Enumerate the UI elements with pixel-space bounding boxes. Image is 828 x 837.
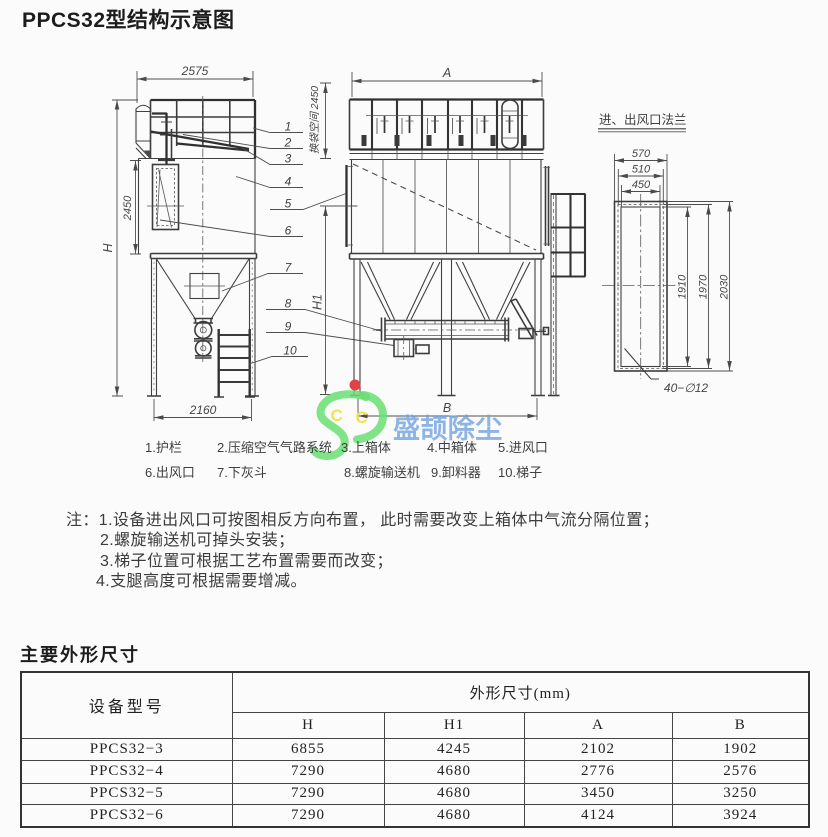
svg-text:换袋空间 2450: 换袋空间 2450 — [309, 86, 321, 154]
svg-text:570: 570 — [632, 148, 651, 160]
svg-text:5: 5 — [285, 197, 292, 211]
svg-text:7: 7 — [285, 261, 293, 275]
svg-text:8: 8 — [285, 297, 292, 311]
svg-text:H: H — [101, 243, 115, 253]
svg-text:510: 510 — [632, 164, 651, 176]
svg-text:2575: 2575 — [181, 64, 209, 78]
svg-text:B: B — [443, 401, 451, 415]
svg-text:450: 450 — [632, 179, 651, 191]
svg-text:H1: H1 — [311, 294, 325, 310]
svg-text:1970: 1970 — [698, 274, 710, 299]
svg-text:2: 2 — [284, 136, 292, 150]
svg-text:9: 9 — [285, 320, 292, 334]
svg-text:C: C — [356, 408, 368, 427]
svg-text:C: C — [331, 406, 343, 425]
svg-text:1: 1 — [285, 120, 292, 134]
svg-text:2030: 2030 — [719, 274, 731, 300]
svg-text:1910: 1910 — [677, 274, 689, 299]
svg-text:A: A — [442, 66, 451, 80]
svg-text:40−∅12: 40−∅12 — [664, 381, 708, 395]
svg-text:2160: 2160 — [189, 403, 217, 417]
svg-text:4: 4 — [285, 175, 292, 189]
svg-text:2450: 2450 — [122, 195, 134, 221]
svg-text:10: 10 — [283, 344, 297, 358]
svg-text:进、出风口法兰: 进、出风口法兰 — [599, 113, 687, 127]
svg-text:3: 3 — [285, 152, 292, 166]
svg-text:6: 6 — [285, 224, 292, 238]
